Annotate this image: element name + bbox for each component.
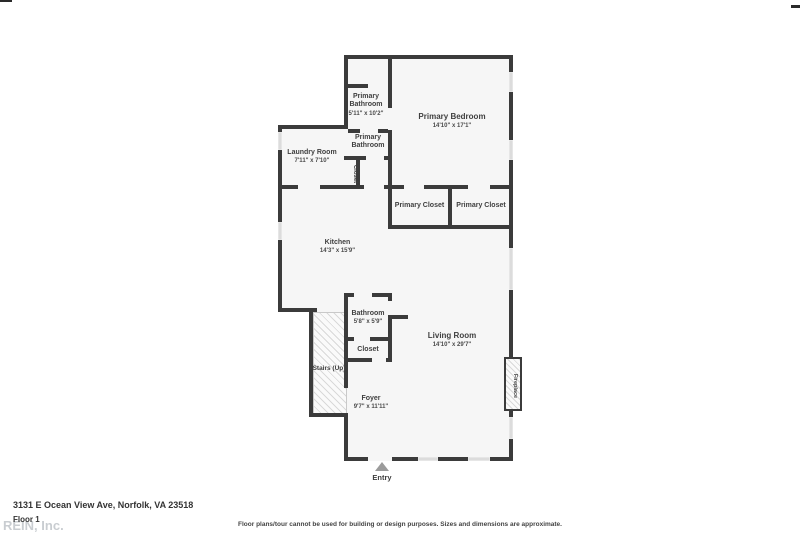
wall: [490, 185, 513, 189]
wall: [392, 457, 513, 461]
wall: [278, 125, 348, 129]
plan-geometry: [0, 0, 800, 533]
wall: [388, 315, 408, 319]
wall: [344, 457, 368, 461]
window-segment: [509, 417, 513, 439]
crop-artifact: [0, 0, 12, 2]
room-label-fireplace: Fireplace: [510, 364, 520, 408]
wall: [344, 358, 372, 362]
room-label-laundry-room: Laundry Room 7'11" x 7'10": [277, 149, 347, 166]
room-label-foyer: Foyer 9'7" x 11'11": [346, 395, 396, 412]
crop-artifact: [791, 5, 800, 8]
window-segment: [278, 222, 282, 240]
room-label-primary-bathroom-mid: Primary Bathroom: [346, 134, 390, 151]
entry-arrow-icon: [375, 462, 389, 471]
wall: [388, 225, 513, 229]
window-segment: [509, 248, 513, 290]
wall: [344, 84, 368, 88]
fireplace: Fireplace: [504, 357, 522, 411]
wall: [344, 413, 348, 461]
address-text: 3131 E Ocean View Ave, Norfolk, VA 23518: [13, 500, 193, 510]
room-label-kitchen: Kitchen 14'3" x 15'9": [305, 239, 370, 256]
stairs-hatch: [313, 312, 347, 415]
wall: [344, 55, 513, 59]
room-label-primary-closet-left: Primary Closet: [391, 202, 448, 210]
wall: [344, 337, 354, 341]
wall: [378, 129, 388, 133]
room-label-bathroom: Bathroom 5'8" x 5'9": [346, 310, 390, 327]
wall: [348, 129, 360, 133]
window-segment: [418, 457, 438, 461]
window-segment: [509, 140, 513, 160]
wall: [384, 156, 392, 160]
room-label-foyer-closet: Closet: [348, 346, 388, 354]
wall: [388, 293, 392, 301]
wall: [278, 185, 298, 189]
room-label-primary-bedroom: Primary Bedroom 14'10" x 17'1": [397, 112, 507, 130]
floor-plan-canvas: Primary Bathroom 5'11" x 10'2" Primary B…: [0, 0, 800, 533]
room-label-hall-closet: Closet: [346, 154, 358, 194]
wall: [344, 293, 354, 297]
window-segment: [509, 72, 513, 92]
room-label-primary-bathroom-top: Primary Bathroom 5'11" x 10'2": [342, 93, 390, 118]
wall: [309, 413, 348, 417]
room-label-stairs: Stairs (Up): [308, 365, 350, 373]
wall: [392, 185, 404, 189]
wall: [309, 308, 313, 417]
disclaimer-text: Floor plans/tour cannot be used for buil…: [0, 521, 800, 528]
wall: [386, 358, 392, 362]
window-segment: [278, 132, 282, 150]
room-label-primary-closet-right: Primary Closet: [452, 202, 510, 210]
wall: [424, 185, 468, 189]
entry-label: Entry: [360, 473, 404, 482]
room-label-living-room: Living Room 14'10" x 29'7": [407, 331, 497, 349]
window-segment: [468, 457, 490, 461]
